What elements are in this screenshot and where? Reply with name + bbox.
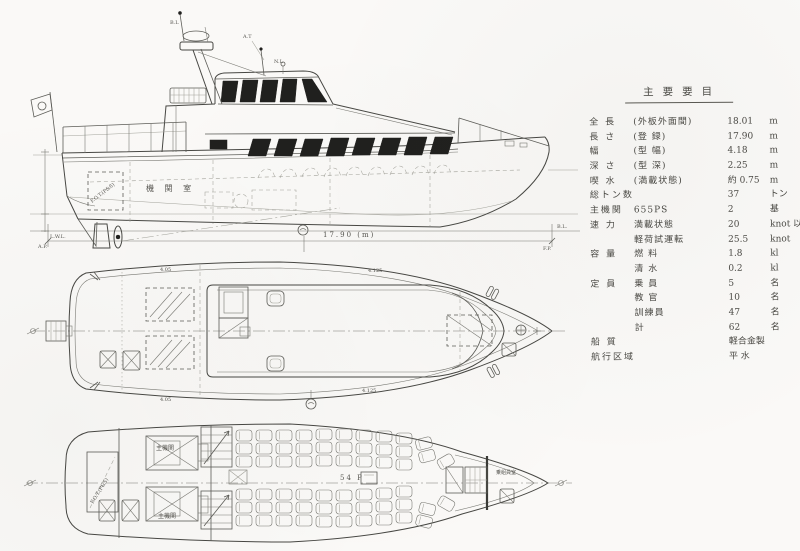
spec-sub: 訓練員 [635, 305, 727, 319]
aerial-label: A.T [242, 34, 252, 40]
ap-label: A.P. [37, 244, 48, 250]
spec-unit: knot 以上 [770, 216, 800, 229]
spec-value: 20 [726, 219, 770, 229]
companion-stairs [201, 427, 247, 529]
spec-unit: トン [770, 187, 800, 200]
spec-value: 62 [727, 322, 771, 332]
spec-row-crew: 定 員 乗 員 5 名 [590, 275, 800, 291]
spec-value: 2 [726, 205, 770, 215]
spec-sub: 軽荷試運転 [634, 231, 726, 245]
spec-row-speed-trial: 軽荷試運転 25.5 knot [590, 231, 800, 247]
spec-value: 37 [726, 190, 770, 200]
spec-value: 0.2 [726, 263, 770, 273]
spec-sub: (登 録) [633, 128, 725, 142]
spec-label: 深 さ [590, 158, 634, 171]
mast-base [240, 327, 250, 336]
engine-room-label: 機 関 室 [146, 183, 195, 193]
spec-table: 主要要目 全 長 (外板外面間) 18.01 m 長 さ (登 録) 17.90… [589, 83, 800, 364]
spec-label: 幅 [589, 144, 633, 157]
spec-label: 全 長 [589, 114, 633, 127]
spec-label: 長 さ [589, 129, 633, 142]
superstructure [162, 71, 455, 156]
spec-value: 18.01 [725, 116, 769, 126]
spec-unit: 名 [770, 290, 800, 303]
spec-sub [635, 344, 727, 345]
spec-label: 喫 水 [590, 173, 634, 186]
vent-louver [170, 88, 206, 103]
engine-2-label: 主機関 [158, 512, 176, 520]
spec-unit: kl [770, 248, 800, 258]
spec-label: 定 員 [590, 276, 634, 289]
deck-plan: 4.05 4.125 4.05 4.125 [27, 262, 566, 409]
spec-value: 平 水 [727, 348, 771, 361]
spec-unit: 名 [770, 275, 800, 288]
spec-sub: 計 [635, 319, 727, 333]
spec-value: 約 0.75 [726, 172, 770, 185]
radar-scanner [183, 31, 209, 41]
spec-sub: (満載状態) [634, 173, 726, 187]
spec-label: 容 量 [590, 247, 634, 260]
spec-row-beam: 幅 (型 幅) 4.18 m [589, 143, 799, 159]
spec-sub: (型 幅) [633, 143, 725, 157]
spec-unit: m [770, 175, 800, 185]
spec-label: 主機関 [590, 203, 634, 216]
fuel-tank-label: F.O.T.(P&S) [89, 181, 116, 204]
spec-sub: 乗 員 [634, 275, 726, 289]
spec-row-draft: 喫 水 (満載状態) 約 0.75 m [590, 172, 800, 188]
fuel-tank-lower: F.O.T.(P&S) [87, 452, 118, 512]
length-dim-label: 17.90 (m) [323, 231, 375, 239]
lwl-label: L.W.L. [50, 234, 66, 240]
station-mark-circle [298, 225, 308, 235]
drawing-sheet: B.L A.T N.L [0, 0, 800, 551]
spec-row-speed-loaded: 速 力 満載状態 20 knot 以上 [590, 216, 800, 232]
spec-value: 10 [726, 293, 770, 303]
spec-sub: (型 深) [634, 158, 726, 172]
spec-sub: 清 水 [634, 261, 726, 275]
spec-value: 4.18 [725, 146, 769, 156]
spec-label: 航行区域 [591, 349, 635, 362]
spec-sub [634, 197, 726, 198]
spec-unit: kl [770, 263, 800, 273]
spec-label: 総トン数 [590, 188, 634, 201]
spec-unit: m [769, 131, 799, 141]
deck-dim-bottom-left: 4.05 [160, 397, 171, 403]
rudder [93, 224, 110, 248]
spec-row-water-capacity: 清 水 0.2 kl [590, 260, 800, 276]
spec-sub: 満載状態 [634, 217, 726, 231]
spec-sub: 655PS [634, 205, 726, 216]
spec-unit: 名 [771, 304, 800, 317]
baseline-label: B.L. [557, 224, 568, 230]
interior-details [205, 165, 451, 210]
spec-unit: 基 [770, 201, 800, 214]
spec-value: 2.25 [726, 161, 770, 171]
spec-value: 軽合金製 [727, 334, 771, 347]
spec-row-loa: 全 長 (外板外面間) 18.01 m [589, 113, 799, 129]
spec-row-length: 長 さ (登 録) 17.90 m [589, 128, 799, 144]
spec-row-navigation-area: 航行区域 平 水 [591, 348, 800, 364]
spec-row-fuel-capacity: 容 量 燃 料 1.8 kl [590, 245, 800, 261]
deck-dim-top-left: 4.05 [160, 267, 171, 273]
skylight-port [267, 356, 284, 371]
deck-dim-top-right: 4.125 [368, 268, 382, 274]
spec-unit: knot [770, 234, 800, 244]
spec-unit: 名 [771, 319, 800, 332]
spec-label: 速 力 [590, 217, 634, 230]
spec-label: 船 質 [591, 335, 635, 348]
flag [31, 92, 57, 152]
spec-value: 25.5 [726, 234, 770, 244]
fuel-tank-side: F.O.T.(P&S) [88, 172, 123, 210]
spec-table-title: 主要要目 [625, 84, 733, 104]
cabin-aisle: 54 P [340, 472, 377, 484]
seat-count-label: 54 P [340, 474, 364, 482]
spec-sub: 教 官 [634, 290, 726, 304]
cabin-windows [210, 137, 453, 156]
spec-row-tonnage: 総トン数 37 トン [590, 187, 800, 203]
spec-row-trainees: 訓練員 47 名 [591, 304, 800, 320]
fp-label: F.P. [543, 246, 552, 252]
spec-value: 17.90 [725, 131, 769, 141]
spec-unit: m [769, 116, 799, 126]
lower-deck-plan: F.O.T.(P&S) 主機関 主機関 [24, 424, 572, 542]
engine-room: 主機関 主機関 [99, 436, 208, 521]
spec-row-depth: 深 さ (型 深) 2.25 m [590, 157, 800, 173]
spec-sub: (外板外面間) [633, 114, 725, 128]
spec-value: 5 [726, 278, 770, 288]
spec-value: 1.8 [726, 249, 770, 259]
bow-compartment: 乗組員室 [446, 467, 516, 503]
engine-1-label: 主機関 [156, 444, 174, 452]
aft-deck-hatches [100, 288, 194, 370]
spec-row-total-persons: 計 62 名 [591, 319, 800, 335]
whip-antenna [180, 14, 184, 41]
spec-sub: 燃 料 [634, 246, 726, 260]
crew-room-label: 乗組員室 [496, 469, 516, 476]
spec-row-instructors: 教 官 10 名 [590, 290, 800, 306]
deck-dim-bottom-right: 4.125 [362, 388, 376, 394]
companionway-hood [219, 287, 248, 338]
spec-unit: m [770, 160, 800, 170]
spec-row-hull-material: 船 質 軽合金製 [591, 334, 800, 350]
spec-unit: m [769, 146, 799, 156]
wheelhouse [215, 71, 333, 105]
spec-value: 47 [727, 307, 771, 317]
mast-top-label: B.L [170, 20, 179, 26]
spec-row-main-engine: 主機関 655PS 2 基 [590, 201, 800, 217]
skylight-stbd [267, 291, 284, 306]
side-view: B.L A.T N.L [30, 11, 580, 252]
spec-sub [635, 359, 727, 360]
